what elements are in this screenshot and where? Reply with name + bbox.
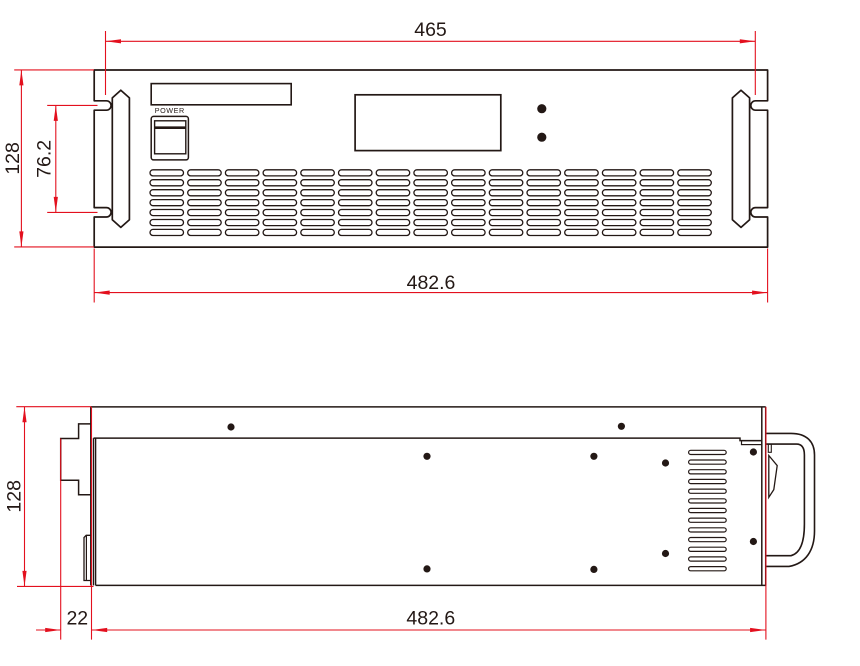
svg-text:465: 465: [414, 19, 447, 41]
svg-text:482.6: 482.6: [407, 272, 456, 294]
svg-text:76.2: 76.2: [33, 140, 55, 178]
svg-text:128: 128: [2, 142, 24, 175]
svg-text:POWER: POWER: [155, 106, 185, 115]
svg-text:482.6: 482.6: [406, 608, 455, 630]
svg-text:128: 128: [4, 480, 26, 513]
svg-text:22: 22: [66, 608, 88, 630]
